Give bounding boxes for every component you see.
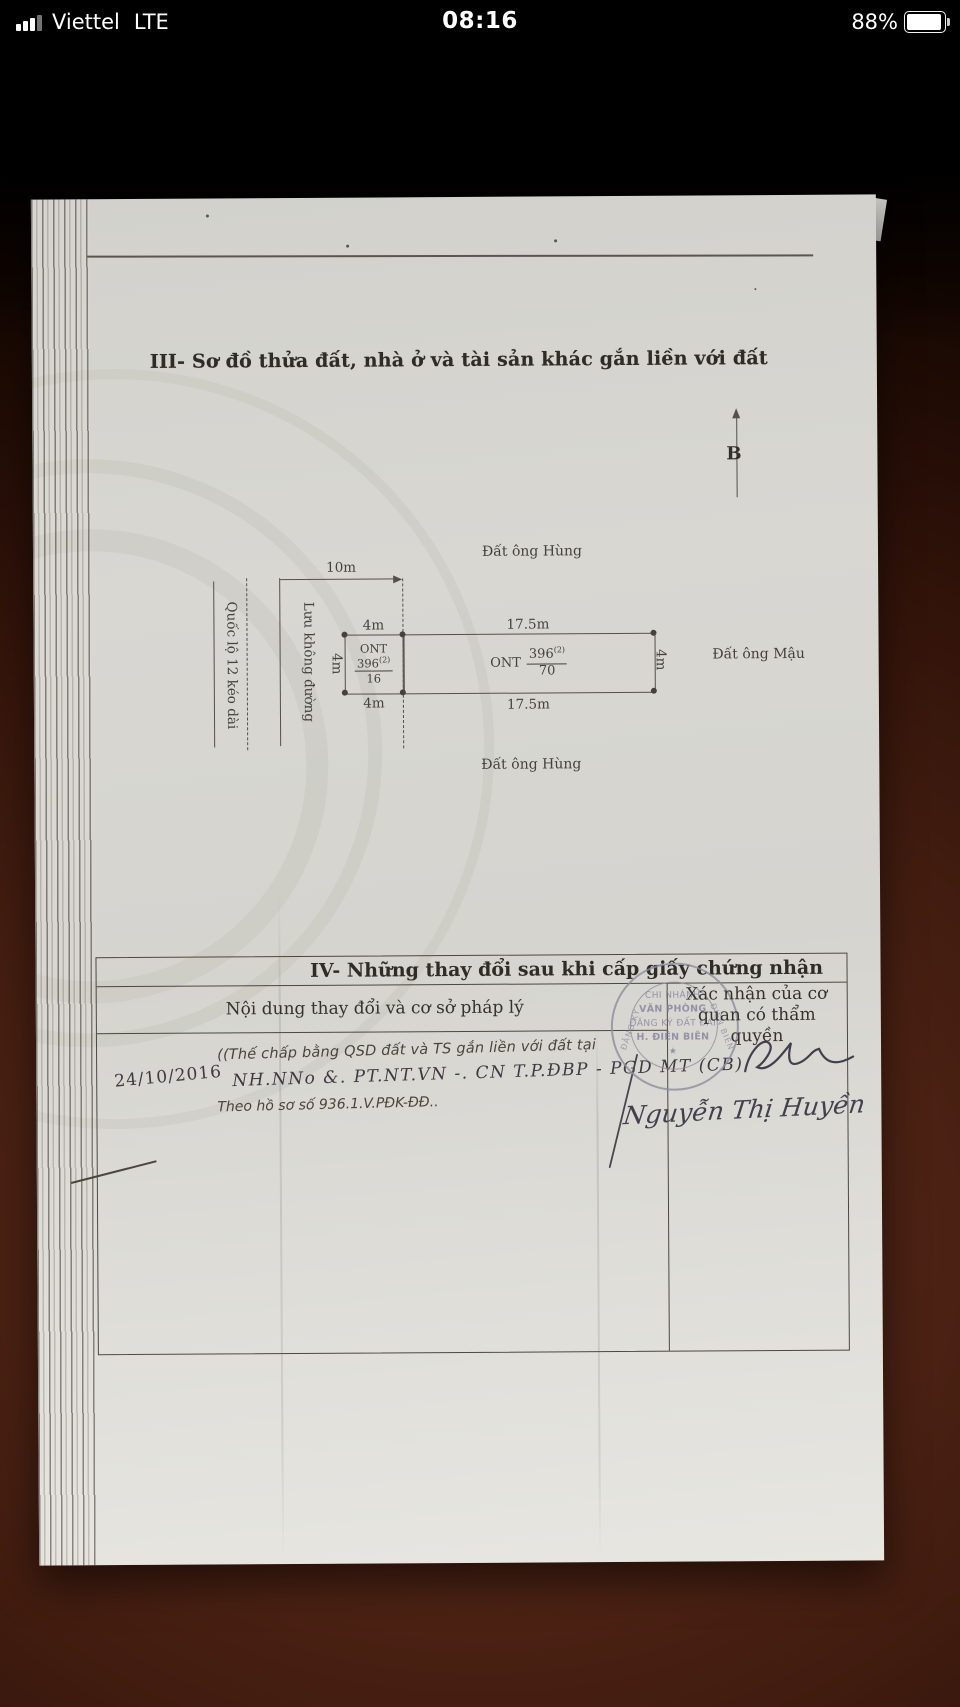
map-sheet-sup: (2) bbox=[379, 655, 390, 664]
parcel-area: 16 bbox=[366, 672, 381, 686]
dimension-arrow bbox=[393, 575, 402, 583]
parcel-number: 396 bbox=[357, 656, 379, 670]
column2-header-line2: quan có thẩm quyền bbox=[669, 1005, 845, 1048]
parcel-number: 396 bbox=[529, 647, 554, 662]
phone-screen: Viettel LTE 08:16 88% III- Sơ đồ thửa đấ… bbox=[0, 0, 960, 1707]
landuse-code: ONT bbox=[490, 655, 521, 670]
neighbor-label-top: Đất ông Hùng bbox=[462, 543, 602, 560]
road-label: Quốc lộ 12 kéo dài bbox=[223, 601, 240, 729]
road-buffer-label: Lưu không đường bbox=[300, 602, 317, 722]
landuse-code: ONT bbox=[360, 641, 387, 656]
neighbor-label-right: Đất ông Mậu bbox=[684, 646, 834, 663]
paper-speck bbox=[206, 215, 209, 218]
paper-speck bbox=[754, 288, 756, 290]
section3-title: III- Sơ đồ thửa đất, nhà ở và tài sản kh… bbox=[150, 347, 790, 373]
dim-4m-left: 4m bbox=[329, 653, 345, 674]
section4-title: IV- Những thay đổi sau khi cấp giấy chứn… bbox=[286, 957, 846, 982]
parcel-area: 70 bbox=[539, 664, 556, 679]
section4-table: IV- Những thay đổi sau khi cấp giấy chứn… bbox=[95, 953, 849, 1356]
battery-icon bbox=[904, 11, 946, 33]
column1-header: Nội dung thay đổi và cơ sở pháp lý bbox=[175, 997, 575, 1019]
page-top-rule bbox=[87, 254, 813, 257]
map-sheet-sup: (2) bbox=[554, 646, 565, 655]
document-page: III- Sơ đồ thửa đất, nhà ở và tài sản kh… bbox=[31, 194, 884, 1565]
clock: 08:16 bbox=[0, 8, 960, 34]
parcel-396-16-label: ONT 396(2) 16 bbox=[347, 636, 401, 690]
table-line bbox=[97, 1030, 667, 1035]
dimension-10m: 10m bbox=[280, 559, 402, 576]
column2-header-line1: Xác nhận của cơ bbox=[669, 984, 845, 1006]
dim-4m-bottom: 4m bbox=[345, 695, 403, 711]
status-bar: Viettel LTE 08:16 88% bbox=[0, 0, 960, 44]
paper-speck bbox=[346, 245, 349, 248]
compass-north-label: B bbox=[726, 443, 741, 464]
parcel-396-70-label: ONT 396(2) 70 bbox=[453, 633, 603, 692]
dim-17-5m-bottom: 17.5m bbox=[403, 696, 654, 714]
neighbor-label-bottom: Đất ông Hùng bbox=[456, 756, 606, 773]
column2-header: Xác nhận của cơ quan có thẩm quyền bbox=[669, 984, 845, 1048]
corner-dot bbox=[651, 688, 657, 694]
paper-speck bbox=[554, 239, 557, 242]
dim-4m-top: 4m bbox=[344, 617, 402, 633]
dim-4m-right: 4m bbox=[653, 649, 669, 670]
battery-percent: 88% bbox=[851, 10, 898, 34]
dim-17-5m-top: 17.5m bbox=[402, 616, 653, 634]
page-binding-edge bbox=[31, 199, 97, 1565]
